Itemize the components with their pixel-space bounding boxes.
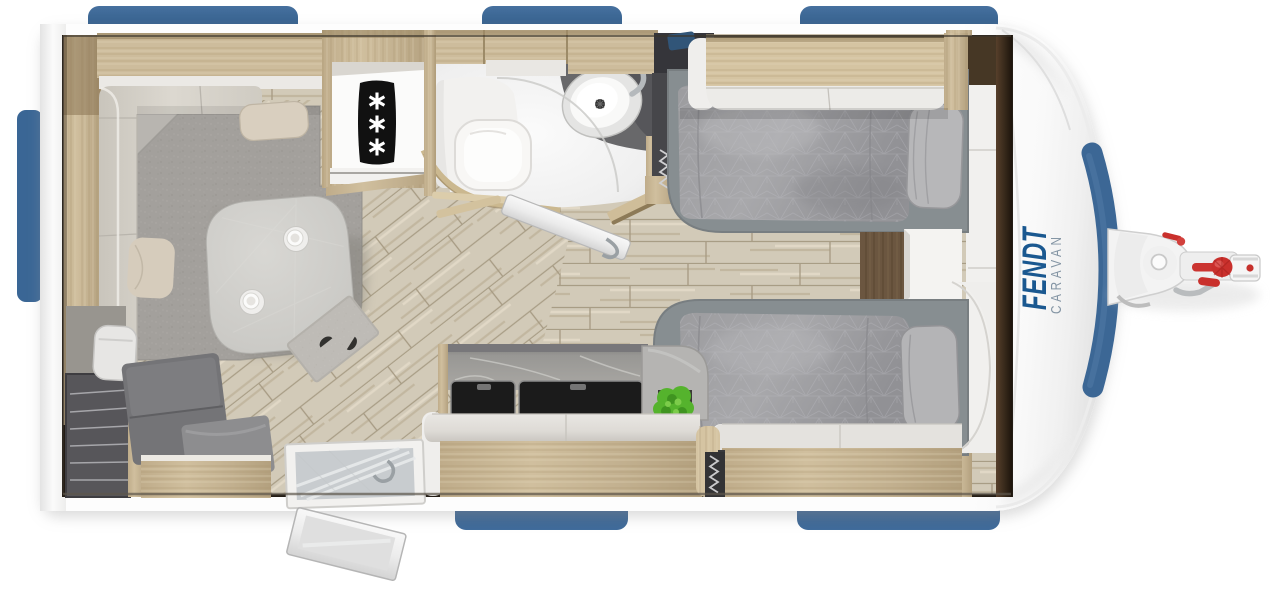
- svg-text:CARAVAN: CARAVAN: [1048, 233, 1064, 314]
